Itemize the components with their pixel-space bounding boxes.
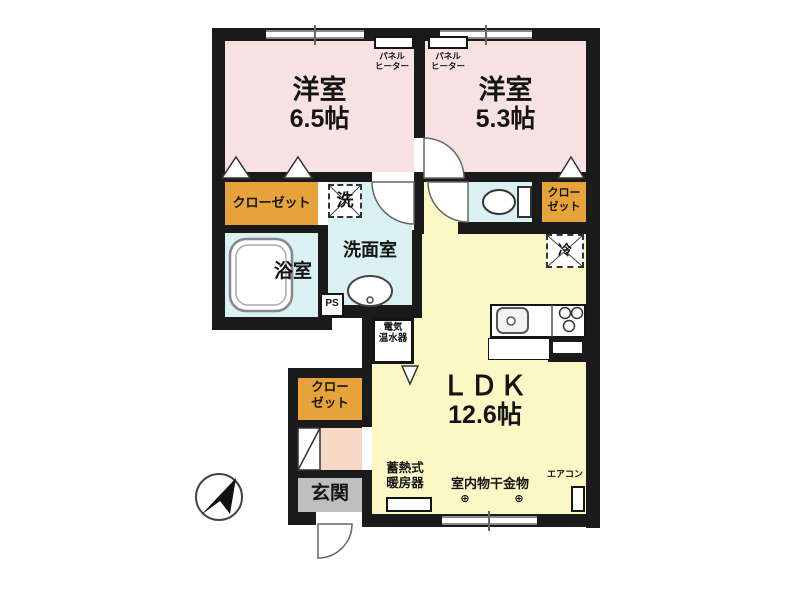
laundry-hardware-label: 室内物干金物 [438,477,542,491]
closet-entry-label: クロー [298,381,362,395]
aircon-label: エアコン [544,470,586,480]
closet-main-label: クローゼット [225,196,318,210]
kitchen-sink-drain-icon [507,317,515,325]
storage-heater-label: 蓄熱式 [378,462,432,476]
closet-door-icon [222,157,250,178]
door-arc-bedroom2 [424,138,464,178]
closet-door-icon [558,157,584,178]
washroom-label: 洗面室 [328,241,412,261]
washbasin-drain-icon [367,297,373,303]
closet-wc-label: ゼット [542,201,586,213]
water-heater-label: 電気 [372,323,414,333]
bedroom2-label: 洋室 [425,76,586,106]
stove-burner-icon [560,308,571,319]
panel-heater1-label: ヒーター [370,62,414,71]
floor-plan: 洋室 6.5帖 洋室 5.3帖 パネル ヒーター パネル ヒーター クローゼット… [0,0,800,600]
door-arc-front [318,524,352,558]
stove-burner-icon [564,321,575,332]
bath-label: 浴室 [260,262,326,283]
storage-heater-label: 暖房器 [378,477,432,491]
panel-heater2-label: ヒーター [426,62,470,71]
bedroom1-size: 6.5帖 [225,106,414,134]
ldk-size: 12.6帖 [395,402,575,430]
stove-burner-icon [572,308,583,319]
bedroom2-size: 5.3帖 [425,106,586,134]
entrance-label: 玄関 [298,484,362,505]
laundry-anchor-icon: ⊕ [458,493,472,505]
door-arc-toilet [428,182,468,222]
bedroom1-label: 洋室 [225,76,414,106]
panel-heater1-label: パネル [370,52,414,61]
fridge-label: 冷 [546,243,584,258]
closet-entry-label: ゼット [298,397,362,411]
closet-door-icon [284,157,312,178]
panel-heater2-label: パネル [426,52,470,61]
water-heater-label: 温水器 [372,334,414,344]
pipe-space-label: PS [318,298,346,309]
washer-label: 洗 [328,192,362,211]
door-arc-bedroom1 [372,182,414,224]
ldk-label: ＬＤＫ [395,372,575,402]
closet-wc-label: クロー [542,187,586,199]
toilet-tank-icon [518,187,531,217]
laundry-anchor-icon: ⊕ [512,493,526,505]
toilet-bowl-icon [483,190,515,214]
